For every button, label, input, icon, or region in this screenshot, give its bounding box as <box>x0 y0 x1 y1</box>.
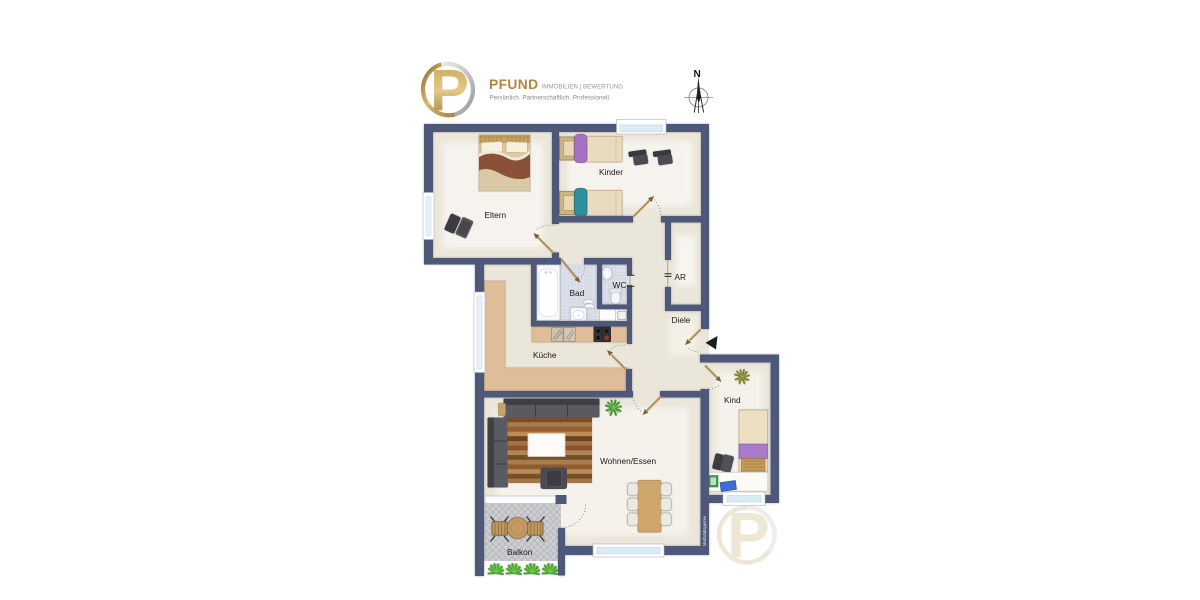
svg-text:Maßstabsgetreu: Maßstabsgetreu <box>702 515 707 546</box>
svg-text:N: N <box>694 69 701 80</box>
svg-text:P: P <box>727 499 770 571</box>
svg-text:Küche: Küche <box>533 350 557 360</box>
svg-text:Kind: Kind <box>724 395 741 405</box>
svg-text:PFUND: PFUND <box>489 77 539 92</box>
svg-text:WC: WC <box>613 280 627 290</box>
svg-text:P: P <box>430 58 469 123</box>
svg-text:IMMOBILIEN | BEWERTUNG: IMMOBILIEN | BEWERTUNG <box>542 84 624 91</box>
svg-text:Bad: Bad <box>570 288 585 298</box>
svg-text:AR: AR <box>675 272 687 282</box>
svg-text:Kinder: Kinder <box>599 167 623 177</box>
svg-text:Wohnen/Essen: Wohnen/Essen <box>600 456 657 466</box>
svg-text:Balkon: Balkon <box>507 547 533 557</box>
svg-text:Eltern: Eltern <box>485 210 507 220</box>
svg-text:Diele: Diele <box>672 315 691 325</box>
svg-text:Persönlich. Partnerschaftlich.: Persönlich. Partnerschaftlich. Professio… <box>490 95 611 102</box>
